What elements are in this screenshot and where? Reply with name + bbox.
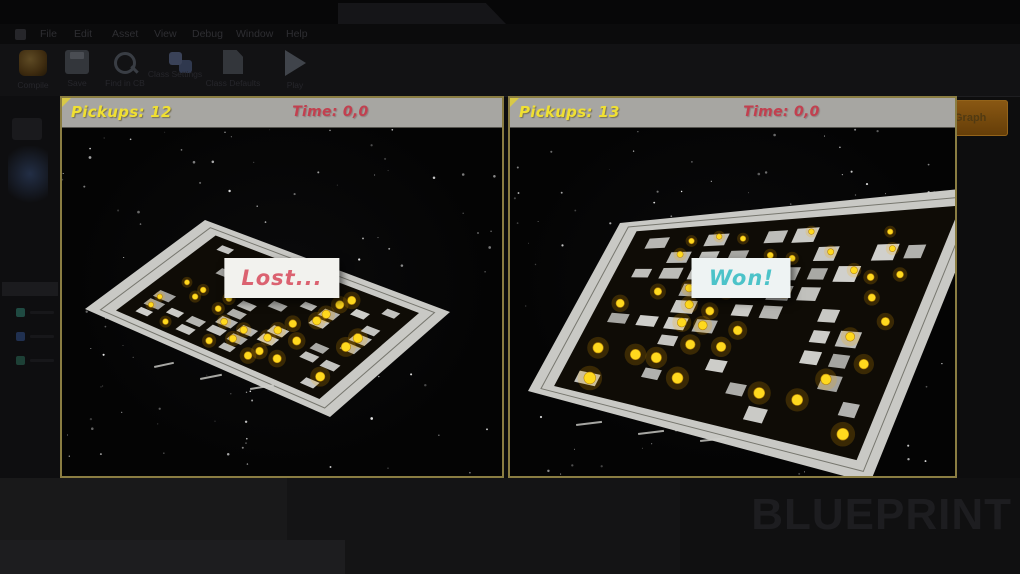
menu-item-file[interactable]: File <box>40 28 57 40</box>
tool-label: Play <box>266 80 324 90</box>
menu-item-debug[interactable]: Debug <box>192 28 223 40</box>
search-icon <box>114 52 136 74</box>
game-viewport-left[interactable]: Pickups: 12 Time: 0,0 Lost... <box>60 96 504 478</box>
panel-row <box>30 359 54 362</box>
editor-menubar: File Edit Asset View Debug Window Help <box>0 24 1020 44</box>
viewport-corner-marker <box>510 98 519 107</box>
game-scene-right[interactable]: Won! <box>510 128 955 476</box>
starfield-platform-render <box>62 128 502 476</box>
variable-dot-icon <box>16 308 25 317</box>
viewport-corner-marker <box>62 98 71 107</box>
tool-label: Class Settings <box>146 69 204 79</box>
blueprint-node-thumbnail <box>8 146 48 208</box>
game-scene-left[interactable]: Lost... <box>62 128 502 476</box>
document-icon <box>223 50 243 74</box>
panel-row <box>30 311 54 314</box>
hud-bar: Pickups: 13 Time: 0,0 <box>510 98 955 128</box>
hud-bar: Pickups: 12 Time: 0,0 <box>62 98 502 128</box>
bottom-toolbar <box>0 540 345 574</box>
my-blueprint-panel <box>0 96 60 478</box>
save-icon <box>65 50 89 74</box>
menu-item-asset[interactable]: Asset <box>112 28 138 40</box>
menu-item-window[interactable]: Window <box>236 28 273 40</box>
gear-icon <box>169 52 182 65</box>
app-logo-icon <box>15 29 26 40</box>
pickups-counter: Pickups: 13 <box>519 103 620 121</box>
bottom-panel <box>287 478 680 574</box>
menu-item-view[interactable]: View <box>154 28 177 40</box>
time-counter: Time: 0,0 <box>743 104 819 120</box>
graph-label: Graph <box>954 112 986 124</box>
menu-item-help[interactable]: Help <box>286 28 308 40</box>
editor-toolbar: Compile Save Find in CB Class Settings C… <box>0 44 1020 97</box>
game-viewport-right[interactable]: Pickups: 13 Time: 0,0 Won! <box>508 96 957 478</box>
tool-label: Class Defaults <box>204 78 262 88</box>
play-button[interactable]: Play <box>266 50 324 90</box>
starfield-platform-render <box>510 128 955 476</box>
pickups-counter: Pickups: 12 <box>71 103 172 121</box>
class-defaults-button[interactable]: Class Defaults <box>204 50 262 88</box>
time-counter: Time: 0,0 <box>292 104 368 120</box>
class-settings-button[interactable]: Class Settings <box>146 50 204 79</box>
panel-row <box>30 335 54 338</box>
blueprint-document-tab[interactable] <box>338 3 506 24</box>
tool-label: Find in CB <box>96 78 154 88</box>
blueprint-watermark: BLUEPRINT <box>751 490 1012 540</box>
variable-dot-icon <box>16 356 25 365</box>
editor-titlebar <box>0 0 1020 24</box>
compile-icon <box>19 50 47 76</box>
panel-icon <box>12 118 42 140</box>
result-message: Lost... <box>224 258 339 298</box>
menu-item-edit[interactable]: Edit <box>74 28 92 40</box>
play-icon <box>285 50 306 76</box>
variable-dot-icon <box>16 332 25 341</box>
panel-section-header <box>2 282 58 296</box>
result-message: Won! <box>692 258 791 298</box>
unreal-editor-window: File Edit Asset View Debug Window Help C… <box>0 0 1020 574</box>
